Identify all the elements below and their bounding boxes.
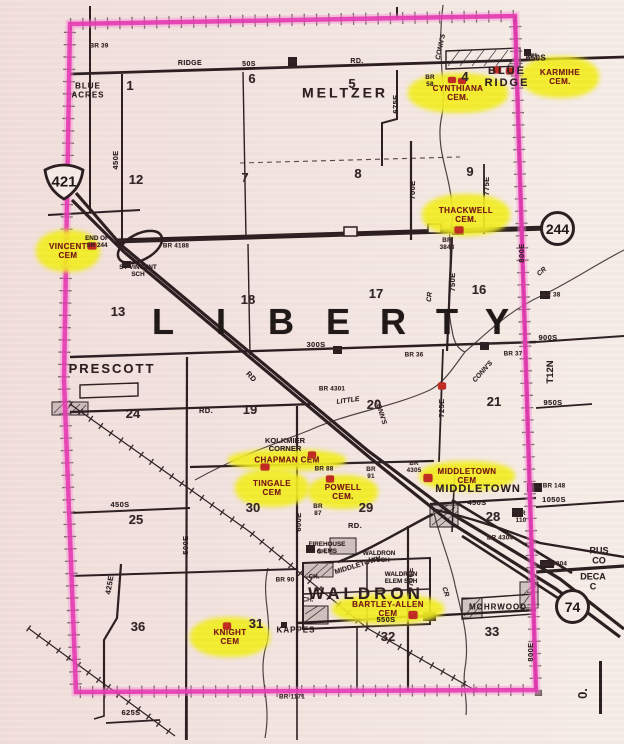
sr-244-shield: 244 (540, 211, 575, 246)
creek-label: CONN'S (472, 360, 495, 384)
county-map-scan: KARMIHE CEM. CYNTHIANA CEM. THACKWELL CE… (0, 0, 624, 744)
creek-label: LITTLE (336, 396, 360, 406)
interstate-74-shield: 74 (555, 589, 590, 624)
creek-label: CONN'S (435, 33, 448, 60)
creek-label: CR (440, 586, 450, 598)
scale-bar (599, 661, 602, 714)
creek-label: CR (426, 292, 434, 302)
us-route-421-shield: 421 (42, 163, 86, 201)
creek-label: CR (536, 266, 548, 278)
creek-label: CONN'S (372, 398, 387, 425)
scale-zero-label: 0. (575, 688, 590, 699)
